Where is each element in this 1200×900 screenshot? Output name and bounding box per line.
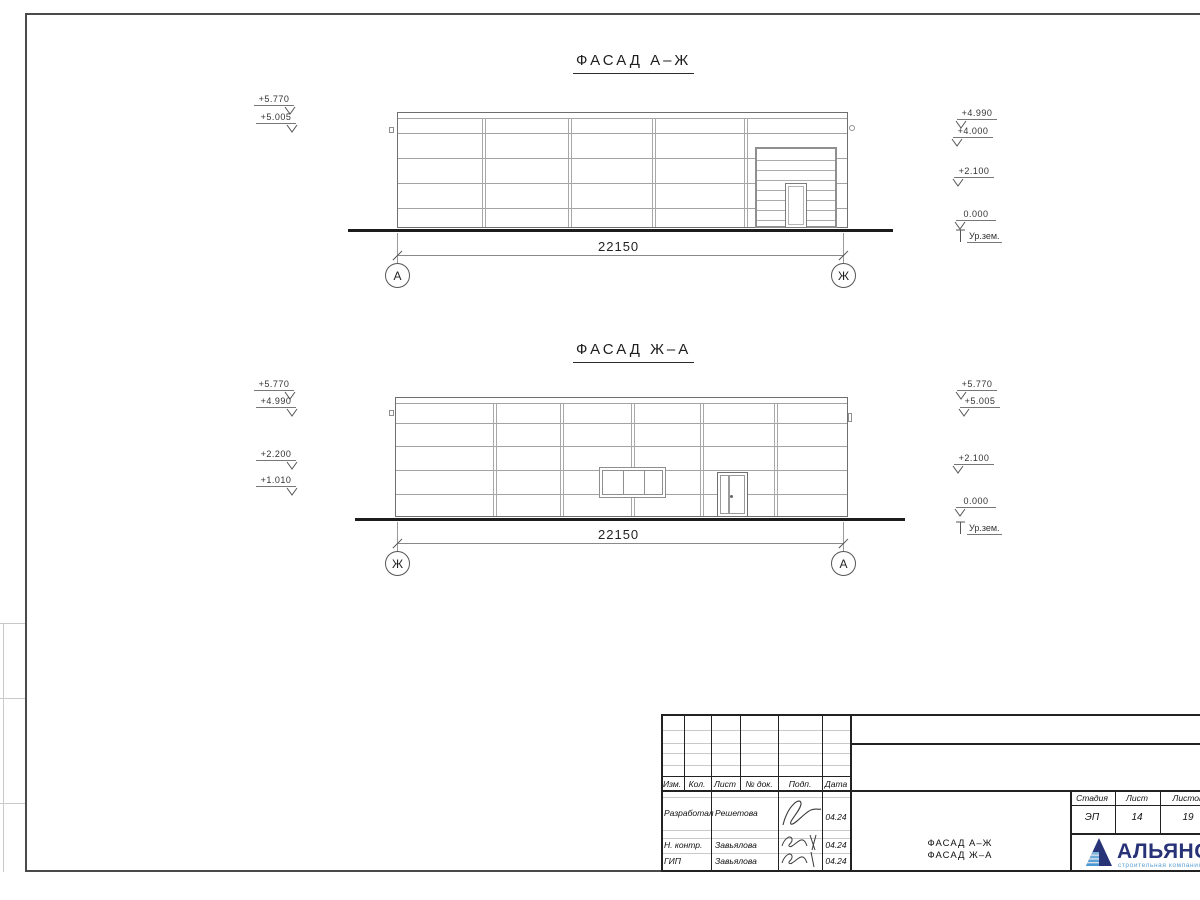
tb-name: Решетова	[715, 808, 758, 818]
axis-bubble-right: А	[831, 551, 856, 576]
tb-header-podp: Подп.	[789, 779, 812, 789]
ground-line	[348, 229, 893, 232]
tb-header-doc: № док.	[745, 779, 772, 789]
elevation-mark: +5.005	[960, 396, 1000, 408]
axis-bubble-left: А	[385, 263, 410, 288]
window	[599, 467, 666, 498]
level-arrow-icon	[951, 138, 963, 147]
wicket-door	[785, 183, 807, 228]
facade-bottom-title: ФАСАД Ж–А	[573, 341, 694, 363]
ground-level-mark: Ур.зем.	[956, 229, 1002, 243]
ground-line	[355, 518, 905, 521]
tb-role: ГИП	[664, 856, 681, 866]
tb-header-data: Дата	[825, 779, 847, 789]
tb-stage-label: Стадия	[1076, 793, 1108, 803]
elevation-mark: +5.770	[254, 94, 294, 106]
elevation-mark: 0.000	[956, 209, 996, 221]
dimension-label: 22150	[598, 527, 639, 542]
tb-sheets-value: 19	[1182, 812, 1193, 823]
downpipe-mark	[848, 413, 852, 422]
dimension-line	[397, 255, 843, 256]
logo-pyramid-icon	[1086, 838, 1112, 866]
elevation-mark: +2.100	[954, 453, 994, 465]
elevation-mark: +2.100	[954, 166, 994, 178]
elevation-mark: +4.990	[957, 108, 997, 120]
tb-sheets-label: Листов	[1173, 793, 1200, 803]
elevation-mark: +5.770	[254, 379, 294, 391]
downpipe-mark	[389, 127, 394, 133]
elevation-mark: +4.000	[953, 126, 993, 138]
tb-date: 04.24	[825, 840, 846, 850]
ground-level-icon	[956, 521, 965, 535]
tb-date: 04.24	[825, 856, 846, 866]
elevation-mark: +1.010	[256, 475, 296, 487]
level-arrow-icon	[286, 461, 298, 470]
signature	[780, 850, 822, 869]
signature	[780, 795, 822, 829]
elevation-mark: 0.000	[956, 496, 996, 508]
downpipe-mark	[389, 410, 394, 416]
tb-role: Разработал	[664, 808, 714, 818]
tb-stage-value: ЭП	[1085, 812, 1099, 823]
tb-sheet-label: Лист	[1126, 793, 1148, 803]
level-arrow-icon	[286, 487, 298, 496]
level-arrow-icon	[286, 408, 298, 417]
axis-bubble-left: Ж	[385, 551, 410, 576]
tb-name: Завьялова	[715, 840, 757, 850]
tb-name: Завьялова	[715, 856, 757, 866]
tb-sheet-value: 14	[1131, 812, 1142, 823]
dimension-line	[397, 543, 843, 544]
dimension-label: 22150	[598, 239, 639, 254]
tb-header-izm: Изм.	[663, 779, 681, 789]
elevation-mark: +2.200	[256, 449, 296, 461]
drawing-sheet: ФАСАД А–Ж 22150 А Ж	[0, 0, 1200, 900]
lamp-mark	[849, 125, 855, 131]
facade-bottom-building	[395, 397, 848, 517]
tb-header-kol: Кол.	[689, 779, 706, 789]
elevation-mark: +4.990	[256, 396, 296, 408]
level-arrow-icon	[286, 124, 298, 133]
elevation-mark: +5.770	[957, 379, 997, 391]
ground-level-mark: Ур.зем.	[956, 521, 1002, 535]
company-subtitle: строительная компания	[1118, 862, 1200, 869]
doc-title: ФАСАД А–Ж ФАСАД Ж–А	[928, 838, 993, 862]
tb-date: 04.24	[825, 812, 846, 822]
company-name: АЛЬЯНС	[1117, 840, 1200, 864]
elevation-mark: +5.005	[256, 112, 296, 124]
level-arrow-icon	[954, 508, 966, 517]
tb-header-list: Лист	[714, 779, 736, 789]
ground-level-icon	[956, 229, 965, 243]
level-arrow-icon	[952, 465, 964, 474]
entrance-door	[717, 472, 748, 517]
level-arrow-icon	[958, 408, 970, 417]
tb-role: Н. контр.	[664, 840, 702, 850]
facade-top-title: ФАСАД А–Ж	[573, 52, 694, 74]
axis-bubble-right: Ж	[831, 263, 856, 288]
level-arrow-icon	[952, 178, 964, 187]
